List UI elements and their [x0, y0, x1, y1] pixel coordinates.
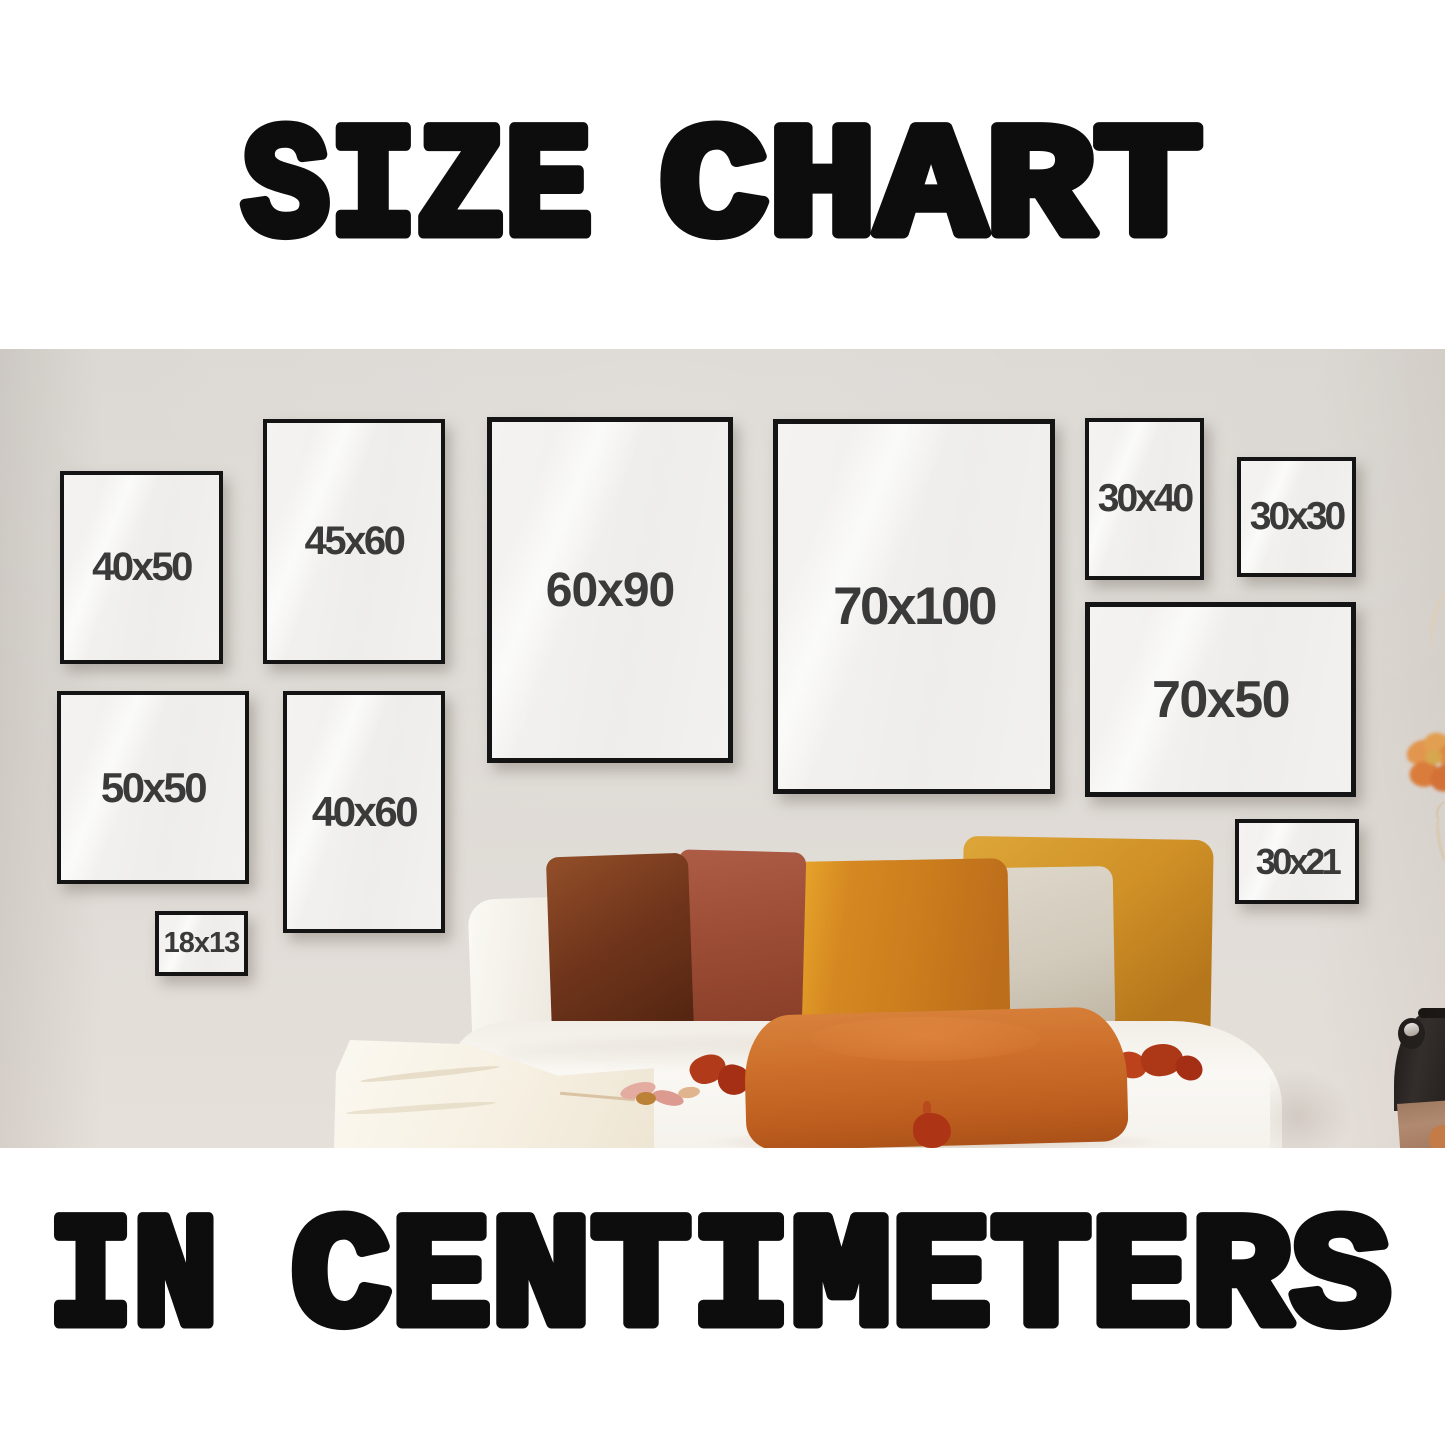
- svg-text:CHART: CHART: [660, 101, 1203, 282]
- svg-text:CENTIMETERS: CENTIMETERS: [291, 1191, 1391, 1372]
- svg-text:SIZE: SIZE: [242, 101, 592, 282]
- svg-text:IN: IN: [48, 1191, 218, 1372]
